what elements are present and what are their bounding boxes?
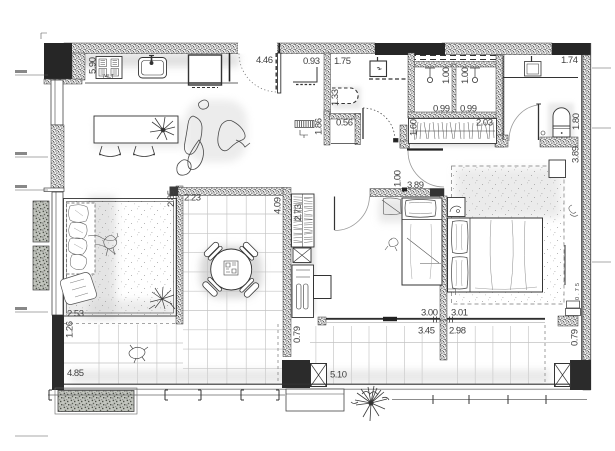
svg-text:0.79: 0.79 [292,326,303,343]
svg-text:0.93: 0.93 [303,56,320,67]
svg-text:1.00: 1.00 [393,170,404,187]
svg-text:74LT: 74LT [102,74,115,80]
svg-text:0.75: 0.75 [575,283,581,300]
svg-text:2.85: 2.85 [166,190,177,207]
svg-text:3.45: 3.45 [418,326,435,337]
svg-text:1.74: 1.74 [561,55,578,66]
svg-text:1.33: 1.33 [330,89,341,106]
svg-text:4.85: 4.85 [67,368,84,379]
svg-text:5.10: 5.10 [330,370,347,381]
svg-text:1.86: 1.86 [314,118,325,135]
svg-text:2.03: 2.03 [476,118,493,129]
svg-text:4.46: 4.46 [256,55,273,66]
svg-text:3.01: 3.01 [451,308,468,319]
svg-text:0.79: 0.79 [570,329,581,346]
svg-text:1.26: 1.26 [65,321,76,338]
svg-text:5.90: 5.90 [88,57,99,74]
svg-text:2.98: 2.98 [449,326,466,337]
svg-text:3.89: 3.89 [407,180,424,191]
svg-text:1.60: 1.60 [409,119,420,136]
svg-text:0.99: 0.99 [460,104,477,115]
svg-text:0.56: 0.56 [336,118,353,129]
svg-text:4.09: 4.09 [273,197,284,214]
svg-text:1.00: 1.00 [441,67,452,84]
svg-text:2.53: 2.53 [67,309,84,320]
svg-text:1.00: 1.00 [460,67,471,84]
svg-text:3.89: 3.89 [571,146,582,163]
svg-text:3.00: 3.00 [421,308,438,319]
svg-text:0.99: 0.99 [433,104,450,115]
svg-text:1.75: 1.75 [334,56,351,67]
svg-text:2.23: 2.23 [184,193,201,204]
svg-text:1.80: 1.80 [571,113,582,130]
svg-text:2.73: 2.73 [293,204,304,221]
